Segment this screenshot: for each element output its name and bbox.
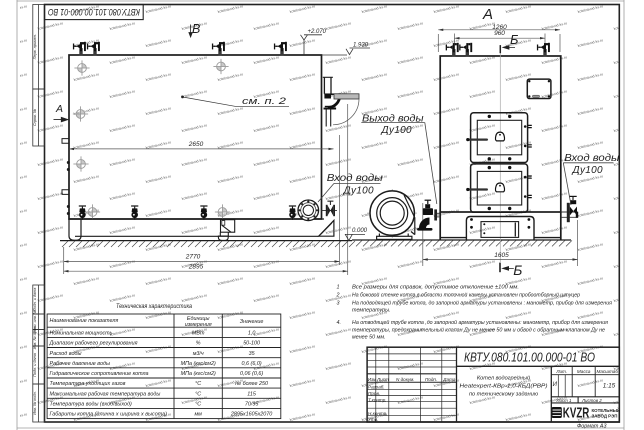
svg-text:1.930: 1.930 [353,42,369,48]
svg-text:Температура воды (вход/выход): Температура воды (вход/выход) [50,402,133,408]
svg-text:2770: 2770 [185,254,201,261]
svg-text:2895: 2895 [188,263,204,270]
svg-text:КВТУ.080.101.00.000-01 ВО: КВТУ.080.101.00.000-01 ВО [464,351,595,365]
svg-text:Перв. примен.: Перв. примен. [33,34,37,59]
svg-text:КОТЕЛЬНЫЙ: КОТЕЛЬНЫЙ [592,408,621,413]
svg-text:мм: мм [194,412,202,418]
svg-text:На подводящей трубе котла, д: На подводящей трубе котла, до запорной а… [352,299,612,306]
svg-text:ЗАВОД РЭП: ЗАВОД РЭП [592,413,618,418]
svg-text:0,06 (0,6): 0,06 (0,6) [240,371,263,377]
svg-text:Рабочее давление воды: Рабочее давление воды [50,361,110,367]
svg-text:+2.070: +2.070 [308,29,327,35]
svg-text:Наименование показателя: Наименование показателя [50,318,119,324]
svg-text:измерения: измерения [185,322,212,328]
svg-text:КВТУ.080.101.00.000-01 ВО: КВТУ.080.101.00.000-01 ВО [48,7,140,17]
svg-text:Подп. и дата: Подп. и дата [33,288,37,312]
svg-text:Гидравлическое сопротивление к: Гидравлическое сопротивление котла [50,371,149,377]
svg-text:МПа (кгс/см2): МПа (кгс/см2) [181,361,216,367]
svg-text:Техническая характеристика: Техническая характеристика [116,303,192,310]
svg-text:2: 2 [336,292,340,298]
svg-text:35: 35 [249,351,256,357]
svg-text:Ду100: Ду100 [343,186,374,197]
svg-text:температуры.: температуры. [352,308,391,314]
svg-text:менее 50 мм.: менее 50 мм. [352,335,386,341]
svg-text:Масштаб: Масштаб [596,369,618,374]
svg-text:А: А [55,103,63,115]
svg-text:Формат А3: Формат А3 [577,424,607,430]
svg-text:2895х1605х2070: 2895х1605х2070 [230,412,272,418]
svg-text:Вход воды: Вход воды [564,153,619,164]
svg-text:по техническому заданию: по техническому заданию [469,392,539,398]
svg-text:Ду100: Ду100 [381,125,412,136]
svg-text:Утв.: Утв. [368,417,378,422]
svg-text:Лит.: Лит. [555,369,567,374]
svg-text:В: В [192,22,200,36]
svg-text:Максимальная рабочая температу: Максимальная рабочая температура воды [50,391,161,397]
svg-text:А: А [482,6,493,23]
svg-text:Изм: Изм [368,377,377,382]
svg-text:70/95: 70/95 [245,402,259,408]
svg-text:2650: 2650 [188,141,204,148]
svg-text:Подп.: Подп. [425,377,437,382]
svg-text:Б: Б [513,262,522,278]
svg-text:МПа (кгс/см2): МПа (кгс/см2) [181,371,216,377]
svg-text:Номинальная мощность: Номинальная мощность [50,331,113,337]
svg-text:Котел водогрейный: Котел водогрейный [477,375,530,382]
svg-text:115: 115 [247,391,257,397]
svg-text:N докум.: N докум. [396,377,415,382]
svg-text:Инв. № подл.: Инв. № подл. [33,391,37,415]
svg-text:Н.контр.: Н.контр. [368,411,387,416]
svg-text:1: 1 [337,285,340,291]
svg-text:Т.контр.: Т.контр. [368,397,387,402]
svg-text:Дата: Дата [442,377,456,382]
svg-text:°С: °С [195,391,201,397]
svg-text:м3/ч: м3/ч [193,351,204,357]
svg-text:1605: 1605 [494,252,509,259]
svg-text:Ду100: Ду100 [572,165,603,176]
svg-text:Лист: Лист [376,377,389,382]
svg-text:Разраб.: Разраб. [368,385,385,390]
svg-text:1,0: 1,0 [248,331,256,337]
svg-text:Инв. № дубл.: Инв. № дубл. [33,326,37,349]
svg-text:Лист 1: Лист 1 [556,398,573,403]
svg-text:Вход воды: Вход воды [327,173,383,184]
svg-text:не более 250: не более 250 [235,381,268,387]
svg-text:1:15: 1:15 [603,382,616,389]
svg-text:KVZR: KVZR [563,406,590,422]
svg-text:50-100: 50-100 [243,341,260,347]
svg-text:Листов 2: Листов 2 [581,398,602,403]
svg-text:°С: °С [195,381,201,387]
svg-text:Диапазон рабочего регулировани: Диапазон рабочего регулирования [49,341,138,347]
svg-text:Heatexpert-КВр-1,0-КБД(РВР): Heatexpert-КВр-1,0-КБД(РВР) [460,384,548,390]
svg-text:Значение: Значение [240,319,264,325]
svg-text:960: 960 [494,30,505,37]
svg-text:Масса: Масса [577,369,591,374]
svg-text:Б: Б [510,32,519,47]
svg-text:%: % [196,341,201,347]
svg-text:Температура уходящих газов: Температура уходящих газов [50,381,126,387]
svg-text:Расход воды: Расход воды [50,351,82,357]
svg-text:Пров.: Пров. [368,391,380,396]
svg-text:3: 3 [337,300,340,306]
svg-text:Справ. №: Справ. № [33,109,37,126]
svg-text:4.: 4. [337,320,342,326]
svg-text:На боковой стенке котла в обла: На боковой стенке котла в области топочн… [352,291,580,298]
svg-text:Подп. и дата: Подп. и дата [33,353,37,377]
svg-text:Габариты котла (длинна х ширин: Габариты котла (длинна х ширина х высота… [50,412,168,418]
svg-text:И: И [553,382,558,388]
svg-text:температуры, предохранительный: температуры, предохранительный клапан Ду… [352,326,605,333]
svg-text:На отводящей трубе котла ,до з: На отводящей трубе котла ,до запорной ар… [352,319,608,326]
svg-text:°С: °С [195,402,201,408]
svg-text:см. п. 2: см. п. 2 [242,96,287,107]
svg-text:0,6 (6,0): 0,6 (6,0) [242,361,262,367]
svg-text:0.000: 0.000 [352,228,368,234]
svg-text:МВт: МВт [192,331,205,337]
svg-text:Все размеры для справок, допус: Все размеры для справок, допустимое откл… [352,285,519,291]
